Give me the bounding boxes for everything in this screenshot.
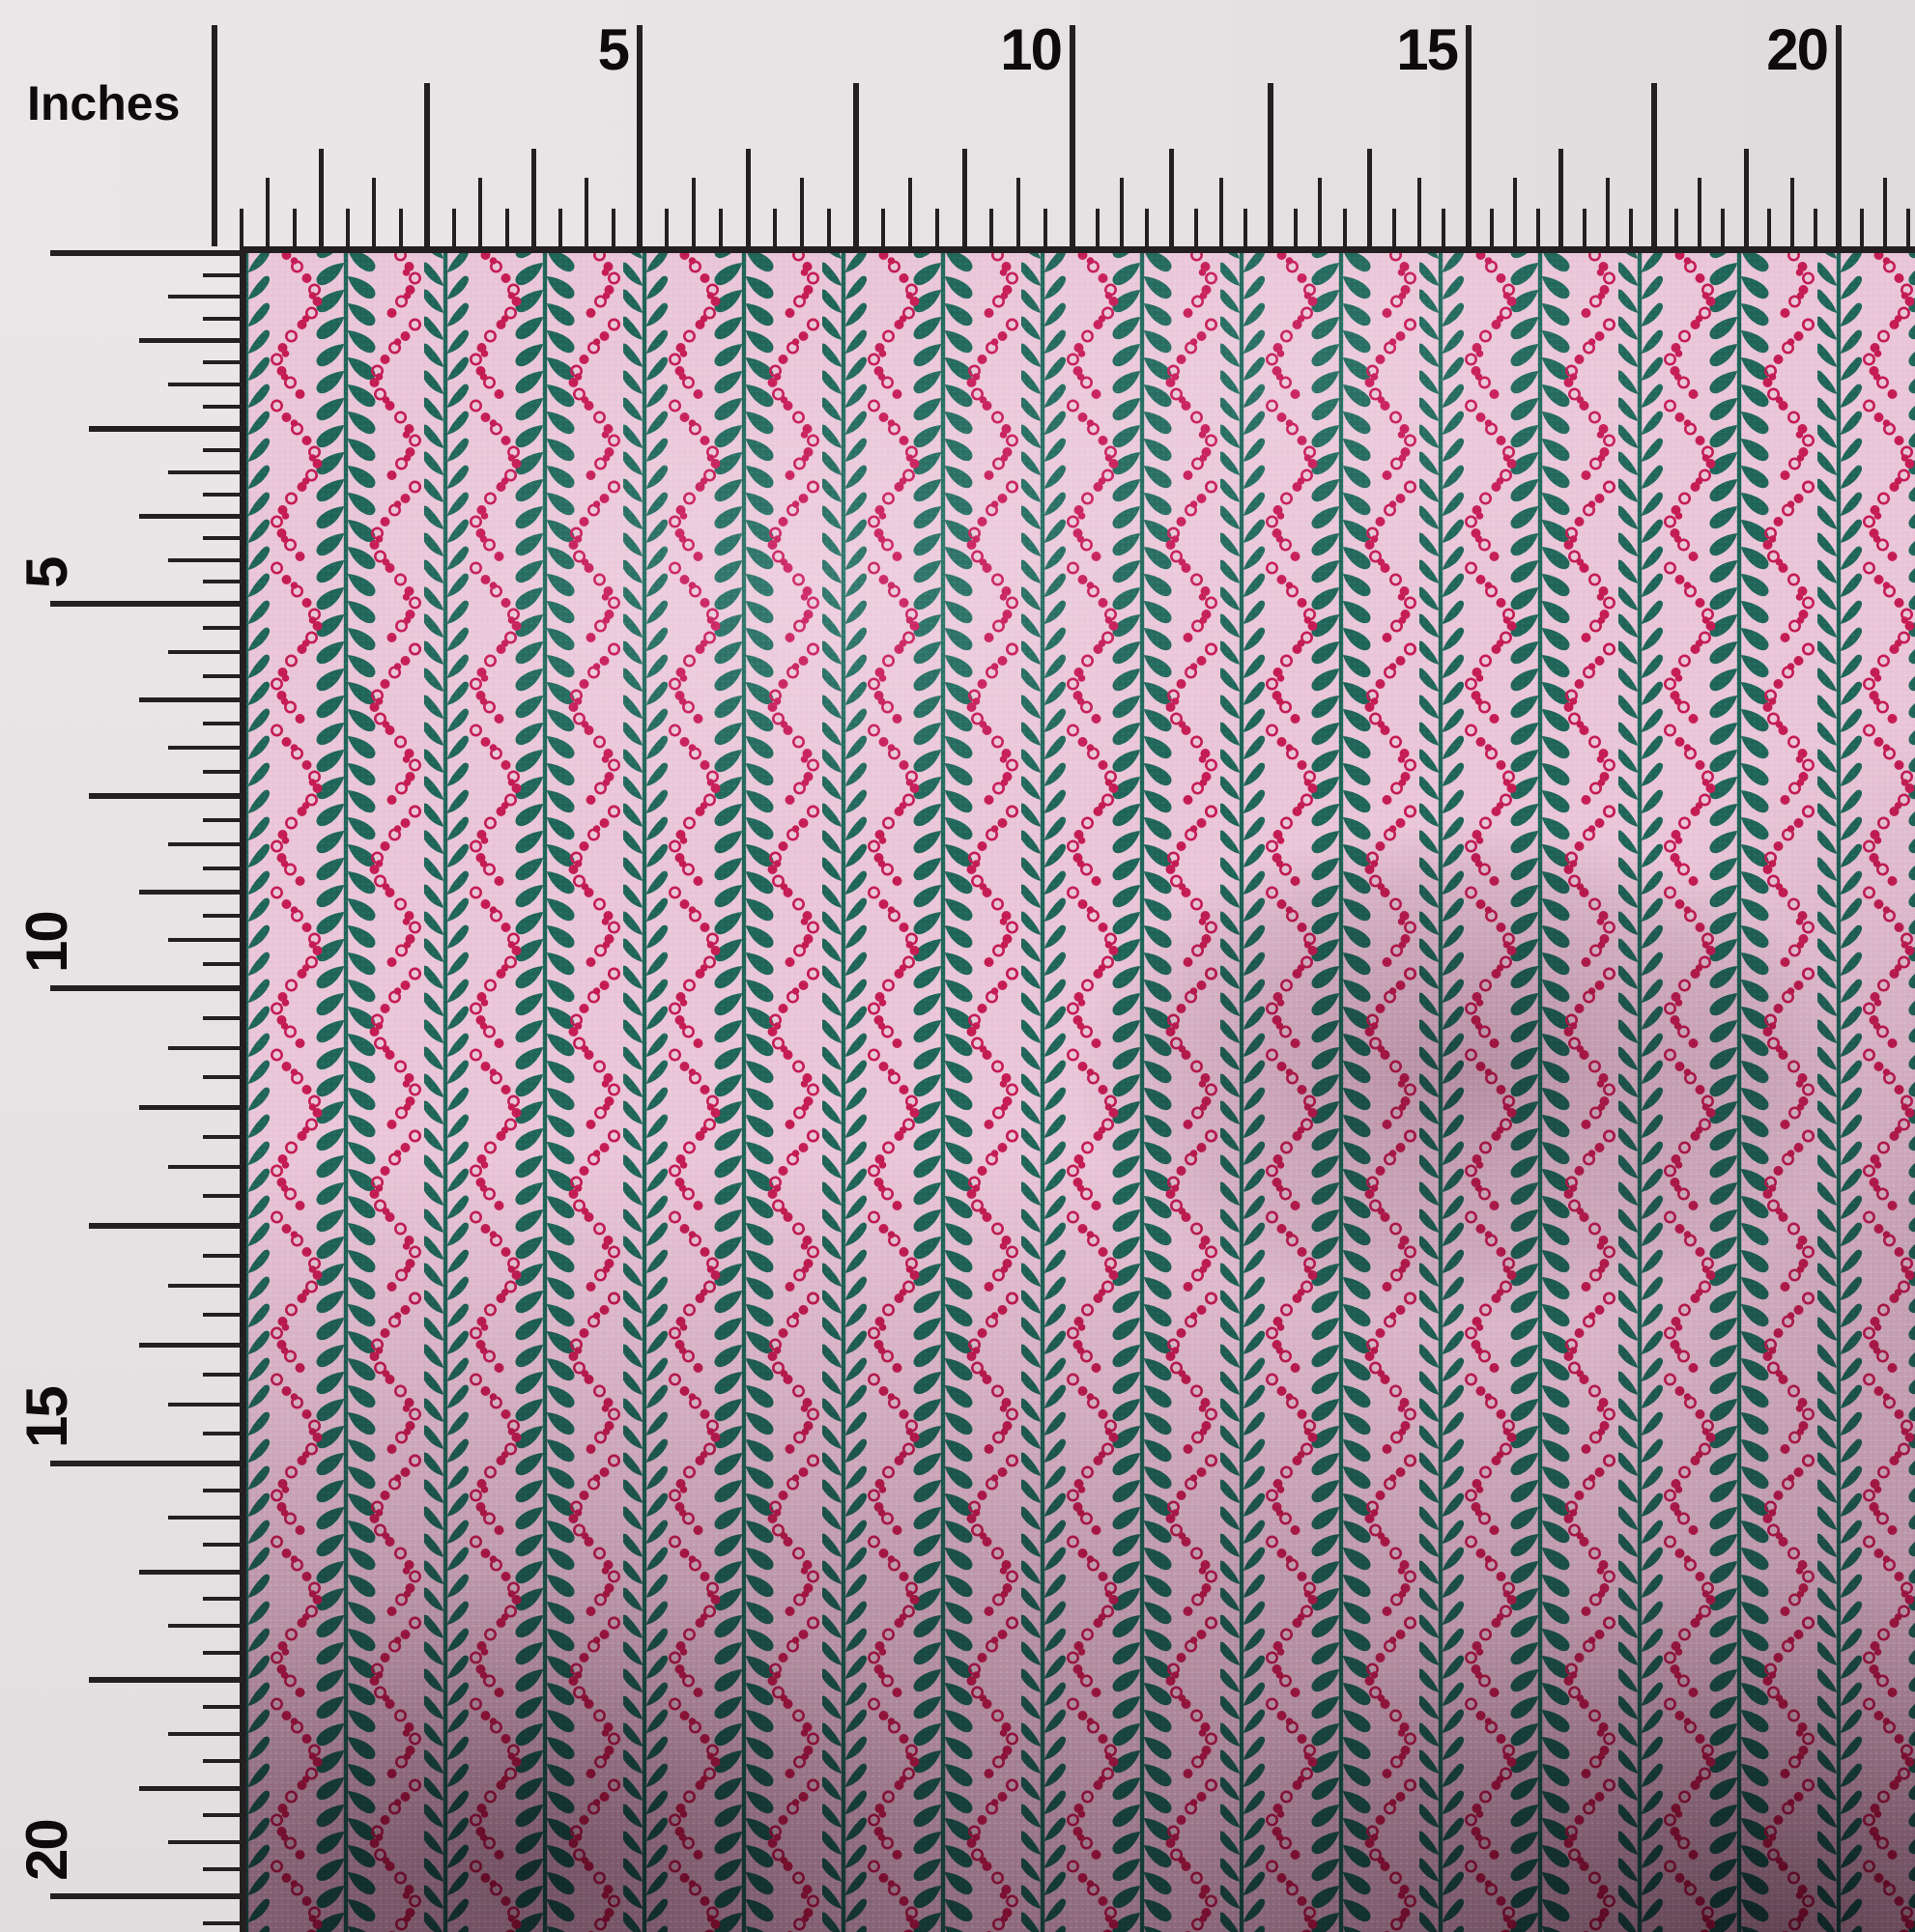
left-ruler-tick: [168, 1284, 242, 1288]
top-ruler-tick: [585, 178, 588, 249]
top-ruler-number: 20: [1692, 21, 1827, 79]
left-ruler-tick: [203, 1867, 242, 1871]
left-ruler-tick: [89, 1223, 242, 1229]
top-ruler-tick: [1120, 178, 1124, 249]
top-ruler-tick: [962, 149, 967, 249]
top-ruler-tick: [1490, 209, 1494, 249]
top-ruler-tick: [558, 209, 562, 249]
left-ruler-number: 15: [19, 1375, 75, 1448]
top-ruler-tick: [1145, 209, 1149, 249]
unit-label: Inches: [27, 79, 180, 128]
top-ruler-tick: [1294, 209, 1298, 249]
left-ruler-tick: [168, 470, 242, 474]
top-ruler-tick: [989, 209, 993, 249]
left-ruler-number: 20: [19, 1807, 75, 1881]
top-ruler-tick: [1698, 178, 1701, 249]
left-ruler-tick: [203, 962, 242, 966]
top-ruler-tick: [452, 209, 456, 249]
top-ruler-tick: [1767, 209, 1771, 249]
top-ruler-tick: [665, 209, 669, 249]
top-ruler-tick: [346, 209, 350, 249]
top-ruler-tick: [1194, 209, 1198, 249]
top-ruler-number: 15: [1322, 21, 1457, 79]
top-ruler-tick: [1836, 25, 1842, 249]
top-ruler-tick: [746, 149, 751, 249]
left-ruler-tick: [203, 914, 242, 918]
left-ruler-tick: [139, 1343, 242, 1348]
top-ruler-tick: [293, 209, 297, 249]
top-ruler-tick: [424, 83, 430, 249]
top-ruler-tick: [1721, 209, 1725, 249]
left-ruler-tick: [139, 1105, 242, 1110]
left-ruler-tick: [203, 770, 242, 774]
top-ruler-tick: [692, 178, 696, 249]
top-ruler-tick: [478, 178, 482, 249]
left-ruler: 5101520: [0, 246, 246, 1932]
left-ruler-number: 10: [19, 899, 75, 973]
left-ruler-tick: [203, 1651, 242, 1655]
top-ruler-tick: [1442, 209, 1445, 249]
left-ruler-tick: [168, 1516, 242, 1520]
top-ruler-tick: [1043, 209, 1047, 249]
top-ruler-tick: [1096, 209, 1100, 249]
top-ruler-number: 10: [926, 21, 1061, 79]
top-ruler-baseline: [23, 246, 1915, 253]
top-ruler-tick: [505, 209, 509, 249]
top-ruler-tick: [1466, 25, 1472, 249]
top-ruler-tick: [773, 209, 777, 249]
top-ruler-tick: [399, 209, 403, 249]
top-ruler-tick: [1318, 178, 1322, 249]
top-ruler-tick: [372, 178, 376, 249]
top-ruler-tick: [1417, 178, 1421, 249]
top-ruler-tick: [1558, 149, 1563, 249]
left-ruler-baseline: [240, 246, 246, 1932]
left-ruler-tick: [168, 1046, 242, 1050]
left-ruler-tick: [203, 448, 242, 452]
left-ruler-tick: [203, 1016, 242, 1020]
left-ruler-tick: [168, 938, 242, 942]
left-ruler-tick: [203, 1705, 242, 1709]
left-ruler-tick: [203, 1432, 242, 1435]
left-ruler-tick: [203, 405, 242, 409]
top-ruler-tick: [827, 209, 831, 249]
top-ruler-tick: [1744, 149, 1749, 249]
left-ruler-tick: [203, 1075, 242, 1079]
left-ruler-tick: [203, 1921, 242, 1925]
left-ruler-tick: [50, 1461, 242, 1466]
top-ruler-tick: [1070, 25, 1075, 249]
top-ruler-tick: [1606, 178, 1610, 249]
left-ruler-tick: [168, 1403, 242, 1406]
top-ruler-tick: [853, 83, 859, 249]
top-ruler-tick: [1169, 149, 1174, 249]
left-ruler-tick: [168, 1165, 242, 1169]
left-ruler-tick: [203, 1135, 242, 1139]
left-ruler-tick: [139, 890, 242, 895]
left-ruler-tick: [203, 626, 242, 630]
top-ruler-tick: [935, 209, 939, 249]
top-ruler-tick: [1883, 178, 1887, 249]
fabric-listing-photo: Inches 5101520 5101520: [0, 0, 1915, 1932]
top-ruler-tick: [1629, 209, 1633, 249]
top-ruler-tick: [1906, 209, 1910, 249]
top-ruler-tick: [212, 25, 217, 249]
left-ruler-tick: [168, 1732, 242, 1736]
left-ruler-tick: [139, 697, 242, 702]
left-ruler-tick: [203, 1194, 242, 1198]
left-ruler-tick: [168, 842, 242, 846]
top-ruler-tick: [266, 178, 270, 249]
left-ruler-tick: [139, 338, 242, 343]
top-ruler-tick: [908, 178, 912, 249]
left-ruler-tick: [50, 985, 242, 991]
top-ruler-tick: [1268, 83, 1273, 249]
top-ruler-tick: [800, 178, 804, 249]
top-ruler-tick: [1243, 209, 1247, 249]
top-ruler-tick: [612, 209, 615, 249]
left-ruler-tick: [50, 1893, 242, 1899]
left-ruler-tick: [50, 601, 242, 607]
left-ruler-tick: [203, 1254, 242, 1258]
left-ruler-tick: [203, 580, 242, 583]
left-ruler-tick: [139, 514, 242, 519]
top-ruler-tick: [1536, 209, 1540, 249]
top-ruler-tick: [1674, 209, 1678, 249]
top-ruler-tick: [1392, 209, 1396, 249]
top-ruler-number: 5: [493, 21, 628, 79]
fabric-swatch: [244, 249, 1915, 1932]
left-ruler-tick: [203, 1489, 242, 1492]
left-ruler-tick: [203, 1313, 242, 1317]
top-ruler-tick: [881, 209, 885, 249]
left-ruler-tick: [89, 426, 242, 432]
top-ruler-tick: [531, 149, 536, 249]
left-ruler-tick: [203, 1373, 242, 1377]
top-ruler-tick: [1790, 178, 1794, 249]
left-ruler-tick: [168, 746, 242, 750]
top-ruler-tick: [1219, 178, 1223, 249]
top-ruler: Inches 5101520: [0, 0, 1915, 253]
left-ruler-tick: [89, 793, 242, 799]
left-ruler-tick: [168, 295, 242, 298]
top-ruler-tick: [1367, 149, 1372, 249]
top-ruler-tick: [1651, 83, 1657, 249]
left-ruler-tick: [139, 1786, 242, 1791]
left-ruler-tick: [203, 493, 242, 497]
left-ruler-tick: [203, 1759, 242, 1763]
left-ruler-tick: [168, 383, 242, 386]
left-ruler-tick: [203, 360, 242, 364]
left-ruler-tick: [203, 536, 242, 540]
vine-pattern: [244, 249, 1915, 1932]
left-ruler-tick: [168, 1840, 242, 1844]
top-ruler-tick: [1343, 209, 1347, 249]
left-ruler-tick: [139, 1570, 242, 1575]
left-ruler-tick: [203, 1813, 242, 1817]
left-ruler-tick: [168, 558, 242, 562]
top-ruler-tick: [240, 209, 243, 249]
left-ruler-tick: [203, 867, 242, 870]
left-ruler-tick: [203, 1597, 242, 1601]
top-ruler-tick: [1860, 209, 1864, 249]
left-ruler-tick: [203, 1543, 242, 1547]
top-ruler-tick: [1814, 209, 1817, 249]
left-ruler-tick: [203, 273, 242, 277]
left-ruler-tick: [168, 650, 242, 654]
left-ruler-tick: [203, 722, 242, 725]
left-ruler-tick: [203, 317, 242, 321]
left-ruler-tick: [203, 818, 242, 822]
top-ruler-tick: [319, 149, 324, 249]
left-ruler-number: 5: [19, 515, 75, 588]
top-ruler-tick: [1583, 209, 1586, 249]
top-ruler-tick: [637, 25, 643, 249]
left-ruler-tick: [89, 1677, 242, 1683]
top-ruler-tick: [719, 209, 723, 249]
left-ruler-tick: [203, 674, 242, 678]
left-ruler-tick: [168, 1624, 242, 1628]
top-ruler-tick: [1513, 178, 1517, 249]
left-ruler-tick: [50, 250, 242, 256]
top-ruler-tick: [1016, 178, 1020, 249]
